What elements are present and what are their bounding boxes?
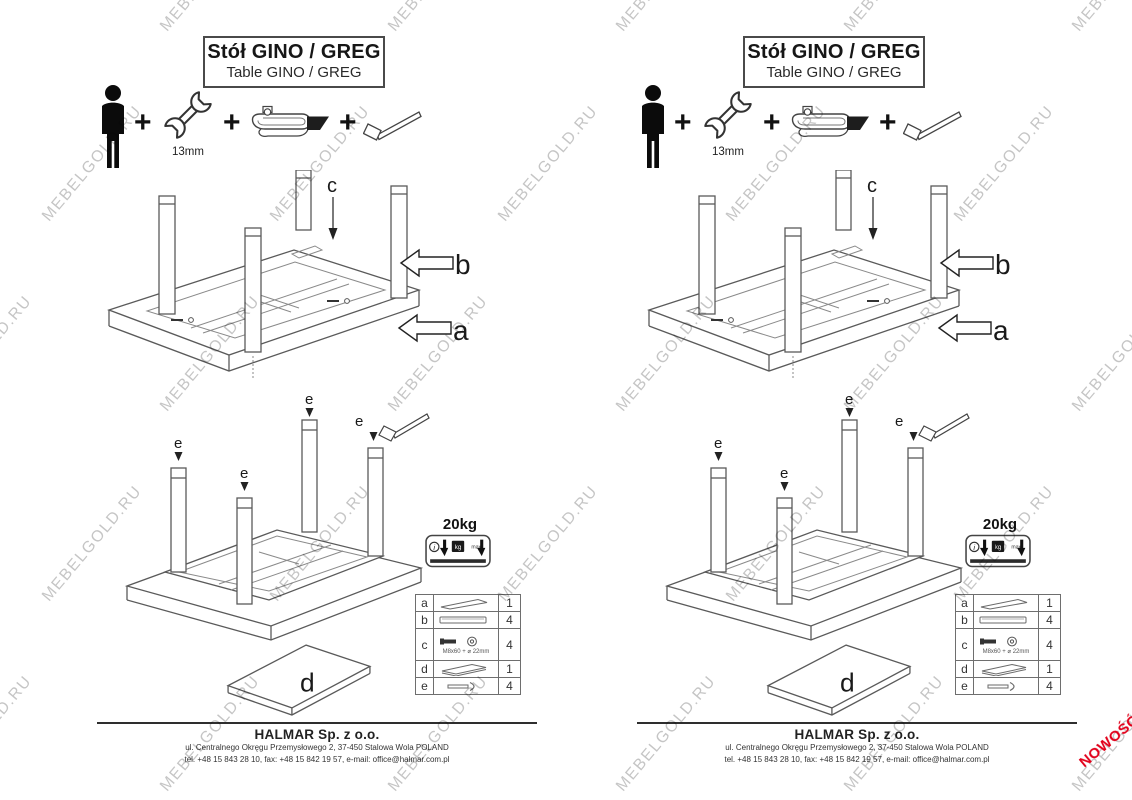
part-row-b: b 4	[416, 612, 521, 629]
wrench-icon	[699, 86, 757, 144]
assembly-step2-diagram: e e e e	[119, 392, 431, 664]
weight-limit-badge: 20kg i kg max	[965, 516, 1035, 568]
weight-limit-badge: 20kg i kg max	[425, 516, 495, 568]
watermark-text: MEBELGOLD.RU	[0, 0, 36, 35]
part-letter: d	[956, 661, 974, 678]
label-d: d	[300, 668, 315, 698]
hammer-icon	[379, 414, 429, 441]
company-contact: tel. +48 15 843 28 10, fax: +48 15 842 1…	[97, 754, 537, 766]
callout-b: b	[401, 249, 471, 280]
max-weight-label: 20kg	[965, 516, 1035, 533]
hammer-icon	[919, 414, 969, 441]
watermark-text: MEBELGOLD.RU	[1069, 0, 1132, 35]
watermark-text: MEBELGOLD.RU	[1069, 293, 1132, 416]
part-row-a: a 1	[956, 595, 1061, 612]
down-arrow-icon	[480, 540, 483, 549]
kg-label: kg	[455, 544, 462, 551]
assembly-step2-diagram: e e e e	[659, 392, 971, 664]
down-arrow-icon	[443, 540, 446, 549]
tabletop-part-icon	[974, 661, 1039, 678]
part-row-b: b 4	[956, 612, 1061, 629]
frame-part-icon	[434, 595, 499, 612]
assembly-step1-diagram: c b a	[99, 170, 477, 392]
frame-part-icon	[974, 595, 1039, 612]
label-a: a	[453, 315, 469, 346]
plus-sign: +	[879, 108, 897, 138]
label-a: a	[993, 315, 1009, 346]
callouts-e: e e e e	[714, 392, 918, 491]
watermark-text: MEBELGOLD.RU	[0, 673, 36, 796]
part-letter: e	[956, 678, 974, 695]
title-box: Stół GINO / GREG Table GINO / GREG	[743, 36, 925, 88]
leg-part-icon	[434, 612, 499, 629]
part-row-e: e 4	[956, 678, 1061, 695]
tabletop-diagram: d	[763, 632, 915, 720]
footer: HALMAR Sp. z o.o. ul. Centralnego Okręgu…	[637, 722, 1077, 765]
company-address: ul. Centralnego Okręgu Przemysłowego 2, …	[97, 742, 537, 754]
plus-sign: +	[674, 108, 692, 138]
label-e: e	[714, 435, 722, 452]
product-title-en: Table GINO / GREG	[747, 64, 921, 82]
instruction-page-right: Stół GINO / GREG Table GINO / GREG + 13m…	[637, 0, 1077, 800]
part-qty: 4	[499, 629, 521, 661]
callouts-e: e e e e	[174, 392, 378, 491]
part-letter: c	[956, 629, 974, 661]
foot-part-icon	[434, 678, 499, 695]
leg-part-icon	[974, 612, 1039, 629]
callout-a: a	[939, 315, 1009, 346]
part-qty: 4	[499, 678, 521, 695]
part-row-d: d 1	[956, 661, 1061, 678]
part-qty: 1	[499, 661, 521, 678]
product-title-pl: Stół GINO / GREG	[207, 41, 381, 64]
label-e: e	[780, 465, 788, 482]
part-row-d: d 1	[416, 661, 521, 678]
part-letter: b	[416, 612, 434, 629]
product-title-en: Table GINO / GREG	[207, 64, 381, 82]
hammer-icon	[903, 98, 967, 148]
hammer-icon	[363, 98, 427, 148]
part-qty: 4	[499, 612, 521, 629]
company-contact: tel. +48 15 843 28 10, fax: +48 15 842 1…	[637, 754, 1077, 766]
plus-sign: +	[134, 108, 152, 138]
label-d: d	[840, 668, 855, 698]
company-name: HALMAR Sp. z o.o.	[637, 727, 1077, 742]
callout-a: a	[399, 315, 469, 346]
part-row-e: e 4	[416, 678, 521, 695]
part-row-c: c M8x60 + ⌀ 22mm 4	[956, 629, 1061, 661]
person-icon	[637, 84, 669, 170]
utility-knife-icon	[785, 102, 873, 144]
part-letter: d	[416, 661, 434, 678]
info-glyph: i	[433, 543, 435, 552]
weight-limit-icon: i kg max	[965, 534, 1031, 568]
part-qty: 4	[1039, 629, 1061, 661]
callout-c: c	[867, 175, 878, 240]
utility-knife-icon	[245, 102, 333, 144]
wrench-icon	[159, 86, 217, 144]
part-letter: a	[416, 595, 434, 612]
part-letter: e	[416, 678, 434, 695]
plus-sign: +	[339, 108, 357, 138]
label-c: c	[327, 175, 337, 197]
label-c: c	[867, 175, 877, 197]
part-row-a: a 1	[416, 595, 521, 612]
weight-limit-icon: i kg max	[425, 534, 491, 568]
bolt-spec-note: M8x60 + ⌀ 22mm	[976, 649, 1036, 655]
part-qty: 1	[499, 595, 521, 612]
kg-label: kg	[995, 544, 1002, 551]
title-box: Stół GINO / GREG Table GINO / GREG	[203, 36, 385, 88]
part-letter: a	[956, 595, 974, 612]
parts-list-table: a 1 b 4 c M8x60 + ⌀ 22mm	[955, 594, 1061, 695]
bolt-washer-part-icon: M8x60 + ⌀ 22mm	[974, 629, 1039, 661]
part-letter: b	[956, 612, 974, 629]
callout-b: b	[941, 249, 1011, 280]
down-arrow-icon	[1020, 540, 1023, 549]
tabletop-diagram: d	[223, 632, 375, 720]
max-weight-label: 20kg	[425, 516, 495, 533]
person-icon	[97, 84, 129, 170]
down-arrow-icon	[983, 540, 986, 549]
company-address: ul. Centralnego Okręgu Przemysłowego 2, …	[637, 742, 1077, 754]
bolt-spec-note: M8x60 + ⌀ 22mm	[436, 649, 496, 655]
bolt-washer-part-icon: M8x60 + ⌀ 22mm	[434, 629, 499, 661]
part-qty: 1	[1039, 595, 1061, 612]
frame-drawing	[649, 250, 959, 371]
part-qty: 1	[1039, 661, 1061, 678]
label-e: e	[845, 392, 853, 408]
label-b: b	[455, 249, 471, 280]
watermark-text: MEBELGOLD.RU	[0, 293, 36, 416]
plus-sign: +	[763, 108, 781, 138]
label-b: b	[995, 249, 1011, 280]
callout-c: c	[327, 175, 338, 240]
company-name: HALMAR Sp. z o.o.	[97, 727, 537, 742]
label-e: e	[305, 392, 313, 408]
frame-drawing	[109, 250, 419, 371]
part-row-c: c M8x60 + ⌀ 22mm 4	[416, 629, 521, 661]
instruction-page-left: Stół GINO / GREG Table GINO / GREG + 13m…	[97, 0, 537, 800]
footer: HALMAR Sp. z o.o. ul. Centralnego Okręgu…	[97, 722, 537, 765]
wrench-size-label: 13mm	[698, 146, 758, 158]
part-qty: 4	[1039, 678, 1061, 695]
info-glyph: i	[973, 543, 975, 552]
label-e: e	[240, 465, 248, 482]
label-e: e	[355, 413, 363, 430]
part-qty: 4	[1039, 612, 1061, 629]
foot-part-icon	[974, 678, 1039, 695]
assembly-step1-diagram: c b a	[639, 170, 1017, 392]
part-letter: c	[416, 629, 434, 661]
label-e: e	[895, 413, 903, 430]
label-e: e	[174, 435, 182, 452]
tabletop-part-icon	[434, 661, 499, 678]
plus-sign: +	[223, 108, 241, 138]
wrench-size-label: 13mm	[158, 146, 218, 158]
product-title-pl: Stół GINO / GREG	[747, 41, 921, 64]
parts-list-table: a 1 b 4 c M8x60 + ⌀ 22mm	[415, 594, 521, 695]
new-badge: NOWOŚĆ	[1076, 712, 1132, 771]
